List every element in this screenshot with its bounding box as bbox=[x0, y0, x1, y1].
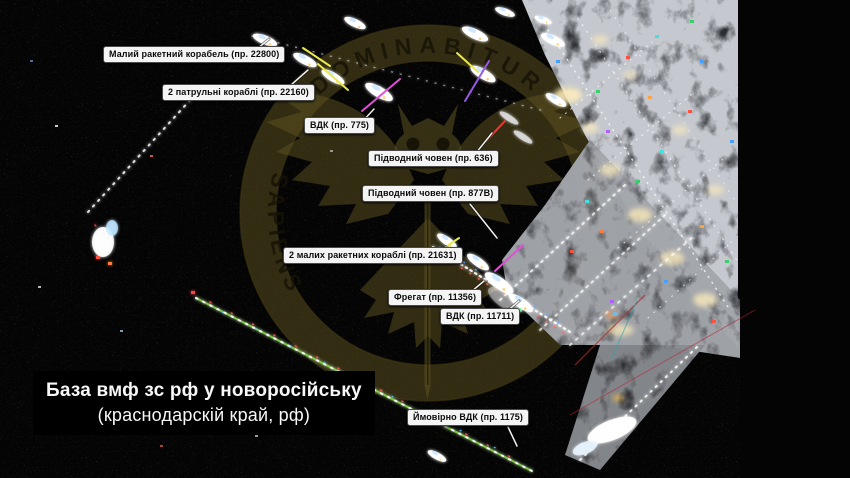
sword-blade-fuller bbox=[427, 190, 428, 385]
ship-label-pr1175: Ймовірно ВДК (пр. 1175) bbox=[407, 409, 529, 426]
ship-label-pr22800: Малий ракетний корабель (пр. 22800) bbox=[103, 46, 285, 63]
ship-label-pr636: Підводний човен (пр. 636) bbox=[368, 150, 499, 167]
title-line-2: (краснодарскій край, рф) bbox=[46, 405, 362, 426]
title-line-1: База вмф зс рф у новоросійську bbox=[46, 380, 362, 402]
ship-label-pr11356: Фрегат (пр. 11356) bbox=[388, 289, 482, 306]
owl-right-eye bbox=[437, 138, 450, 151]
title-block: База вмф зс рф у новоросійську (краснода… bbox=[33, 371, 375, 435]
ship-label-pr877b: Підводний човен (пр. 877В) bbox=[362, 185, 499, 202]
ship-label-pr22160: 2 патрульні кораблі (пр. 22160) bbox=[162, 84, 315, 101]
annotated-satellite-image: DOMINABITUR SAPIENS bbox=[0, 0, 850, 478]
west-terminal-glow bbox=[106, 220, 118, 236]
ship-label-pr775: ВДК (пр. 775) bbox=[304, 117, 375, 134]
west-terminal-orange-light bbox=[108, 262, 112, 265]
ship-label-pr21631: 2 малих ракетних кораблі (пр. 21631) bbox=[283, 247, 463, 264]
west-terminal-red-light bbox=[96, 256, 100, 259]
owl-left-eye bbox=[407, 138, 420, 151]
breakwater-tip-light bbox=[191, 291, 195, 294]
ship-label-pr11711: ВДК (пр. 11711) bbox=[440, 308, 520, 325]
